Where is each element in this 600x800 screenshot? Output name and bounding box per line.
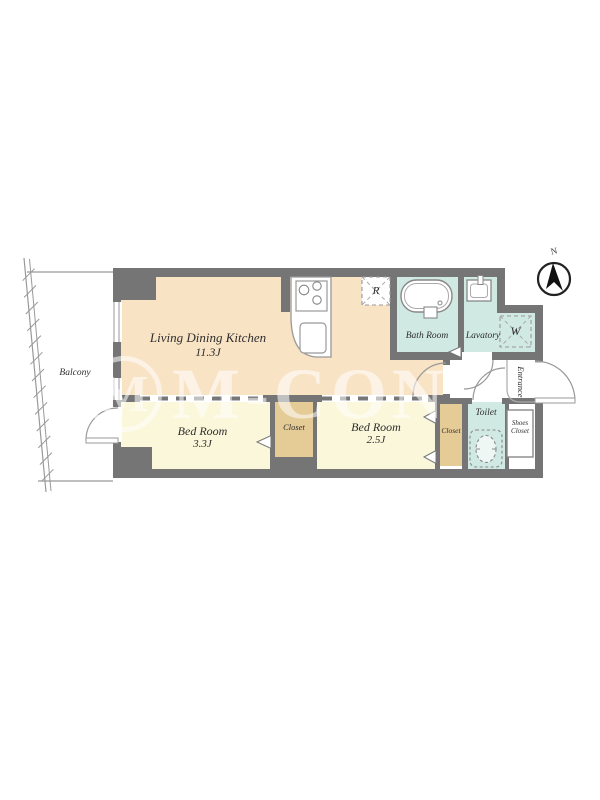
front-door-leaf [535, 398, 575, 403]
balcony-door-leaf [86, 438, 118, 443]
balcony-hatch [23, 269, 54, 482]
floor-plan-drawing [0, 0, 600, 800]
compass-icon [538, 263, 570, 295]
kitchen-counter-icon [291, 277, 331, 357]
entrance-step-line [507, 360, 535, 402]
shoes-closet-box [507, 410, 533, 457]
refrigerator-box [362, 277, 390, 305]
closet2-floor [440, 403, 462, 466]
closet1-floor [275, 402, 313, 457]
bedroom2-floor [317, 402, 435, 469]
ldk-floor [120, 277, 390, 395]
front-door-arc [535, 361, 575, 401]
kitchen-sink-icon [300, 323, 326, 353]
lavatory-door-arc [464, 360, 493, 389]
stove-icon [296, 281, 327, 311]
toilet-door-arc [473, 368, 505, 400]
floor-plan: Living Dining Kitchen 11.3J Bed Room 3.3… [0, 0, 600, 800]
balcony-boundary [23, 258, 113, 492]
